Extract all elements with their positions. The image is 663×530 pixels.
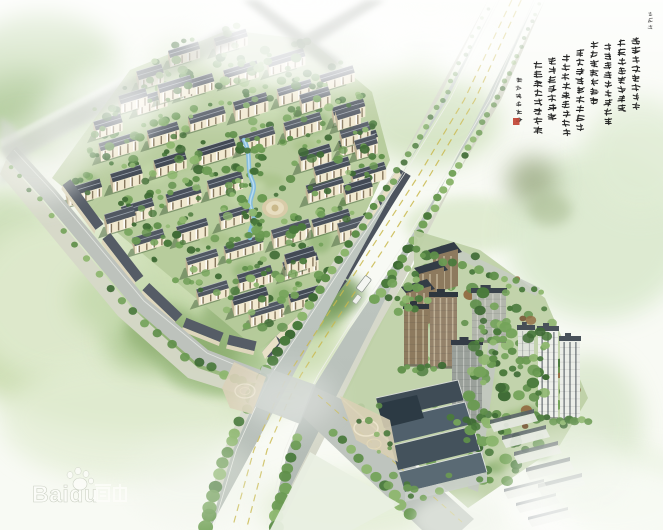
svg-text:Baidu: Baidu <box>32 481 98 507</box>
